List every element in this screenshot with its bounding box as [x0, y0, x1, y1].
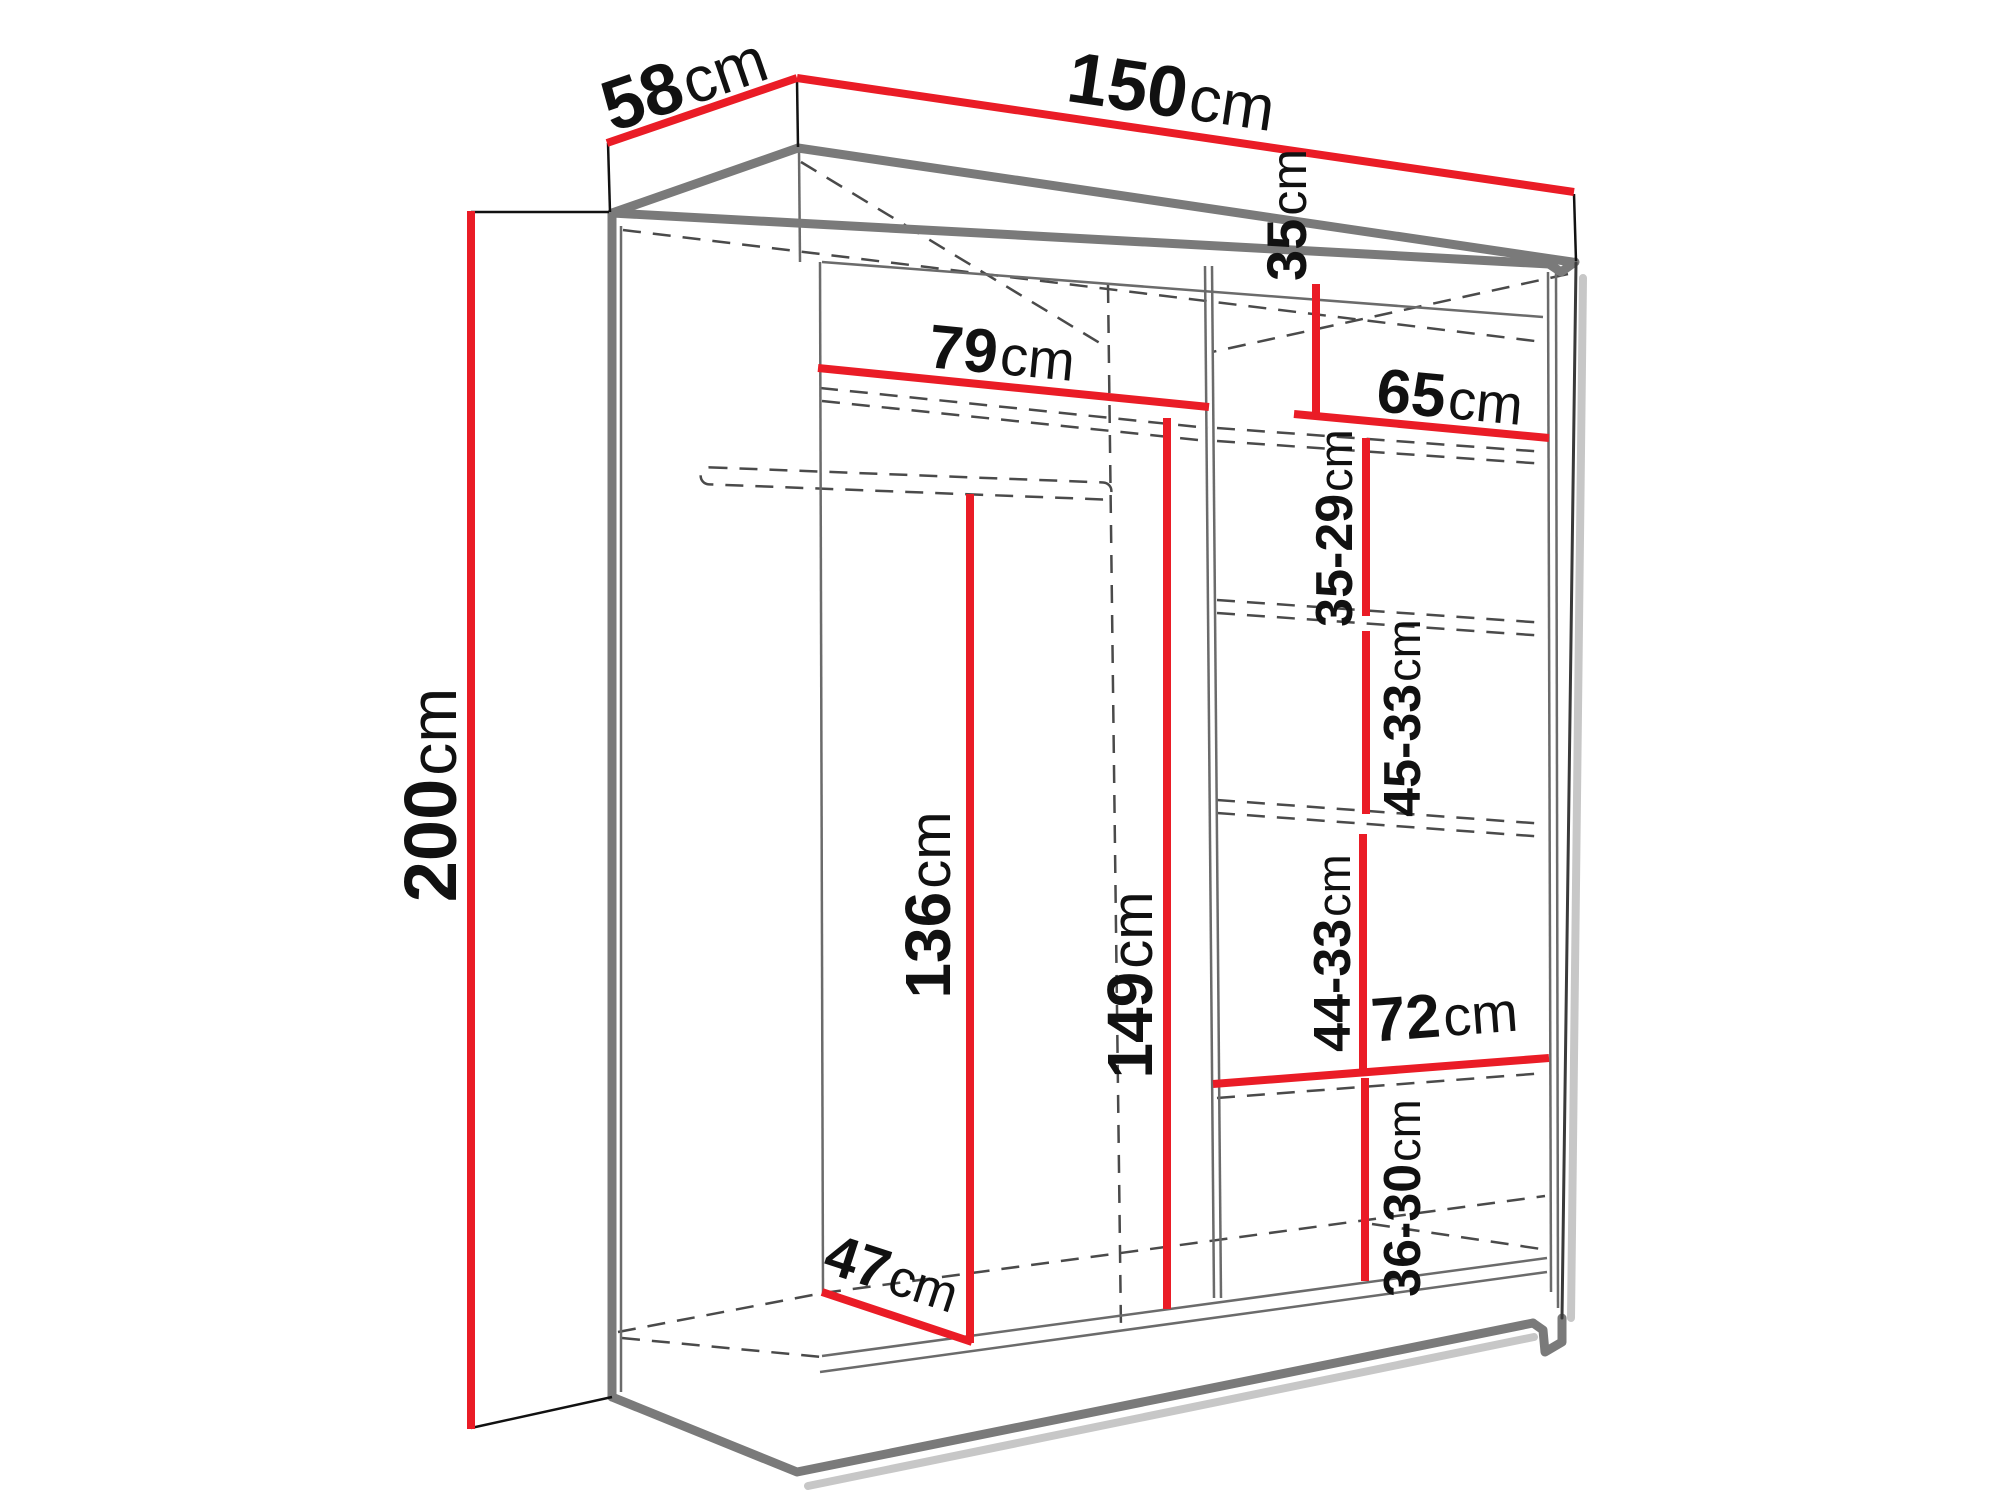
back-left-cornice-line: [799, 150, 800, 262]
width-extension-right: [1574, 194, 1576, 261]
label-right-height: 149cm: [1094, 891, 1166, 1078]
dimension-line-bottom-width: [1213, 1058, 1549, 1084]
bottom-width-unit: cm: [1441, 980, 1520, 1049]
right-inner-wall-line: [1548, 272, 1551, 1292]
label-gap3: 44-33cm: [1304, 854, 1362, 1052]
hanging-rod: [700, 467, 1111, 500]
gap4-unit: cm: [1377, 1099, 1430, 1162]
label-right-width: 65cm: [1374, 356, 1527, 439]
label-gap4: 36-30cm: [1374, 1099, 1432, 1297]
floor-left-back-edge: [618, 1293, 823, 1332]
label-left-height: 136cm: [892, 811, 964, 998]
dimension-labels: 58cm 150cm 200cm 79cm 35cm 65cm 35-29cm …: [389, 17, 1526, 1325]
bottom-front-edge: [612, 1323, 1533, 1472]
gap1-value: 35-29: [1306, 494, 1364, 627]
depth-extension-left: [608, 143, 610, 212]
back-top-edge: [623, 230, 1543, 342]
label-top-gap: 35cm: [1255, 149, 1318, 281]
wardrobe-dimension-diagram: 58cm 150cm 200cm 79cm 35cm 65cm 35-29cm …: [0, 0, 2000, 1500]
top-gap-unit: cm: [1261, 149, 1317, 216]
height-value: 200: [389, 779, 472, 902]
label-bottom-width: 72cm: [1369, 976, 1520, 1056]
top-right-hidden-edge: [1212, 274, 1568, 352]
label-floor-depth: 47cm: [817, 1221, 967, 1325]
right-height-value: 149: [1094, 972, 1166, 1079]
label-gap2: 45-33cm: [1374, 619, 1432, 817]
interior-ceiling-line: [822, 262, 1543, 317]
label-gap1: 35-29cm: [1306, 429, 1364, 627]
height-unit: cm: [396, 688, 470, 776]
gap2-value: 45-33: [1374, 684, 1432, 817]
label-height: 200cm: [389, 688, 472, 902]
label-width: 150cm: [1063, 37, 1281, 147]
divider-back-edge: [1108, 285, 1121, 1330]
right-width-value: 65: [1374, 356, 1449, 431]
top-gap-value: 35: [1255, 219, 1318, 281]
gap4-value: 36-30: [1374, 1164, 1432, 1297]
gap2-unit: cm: [1377, 619, 1430, 682]
right-shelf1-bottom-edge: [1217, 441, 1546, 464]
back-left-corner-line: [820, 262, 823, 1293]
gap3-unit: cm: [1307, 854, 1360, 917]
width-unit: cm: [1185, 61, 1280, 145]
label-depth: 58cm: [592, 17, 777, 147]
left-width-value: 79: [926, 312, 1001, 387]
label-left-width: 79cm: [926, 312, 1079, 395]
top-left-depth-edge: [612, 148, 798, 213]
height-extension-bottom: [471, 1397, 612, 1428]
bottom-width-value: 72: [1369, 981, 1443, 1055]
diagram-canvas: 58cm 150cm 200cm 79cm 35cm 65cm 35-29cm …: [0, 0, 2000, 1500]
depth-unit: cm: [672, 23, 776, 119]
left-height-value: 136: [892, 892, 964, 999]
gap1-unit: cm: [1309, 429, 1362, 492]
right-panel-inner-edge: [1556, 268, 1558, 1308]
right-width-unit: cm: [1446, 367, 1526, 437]
left-width-unit: cm: [998, 323, 1078, 393]
floor-left-front-edge: [622, 1338, 822, 1357]
apex-extension: [797, 80, 798, 147]
right-height-unit: cm: [1100, 891, 1165, 968]
left-height-unit: cm: [898, 811, 963, 888]
gap3-value: 44-33: [1304, 919, 1362, 1052]
